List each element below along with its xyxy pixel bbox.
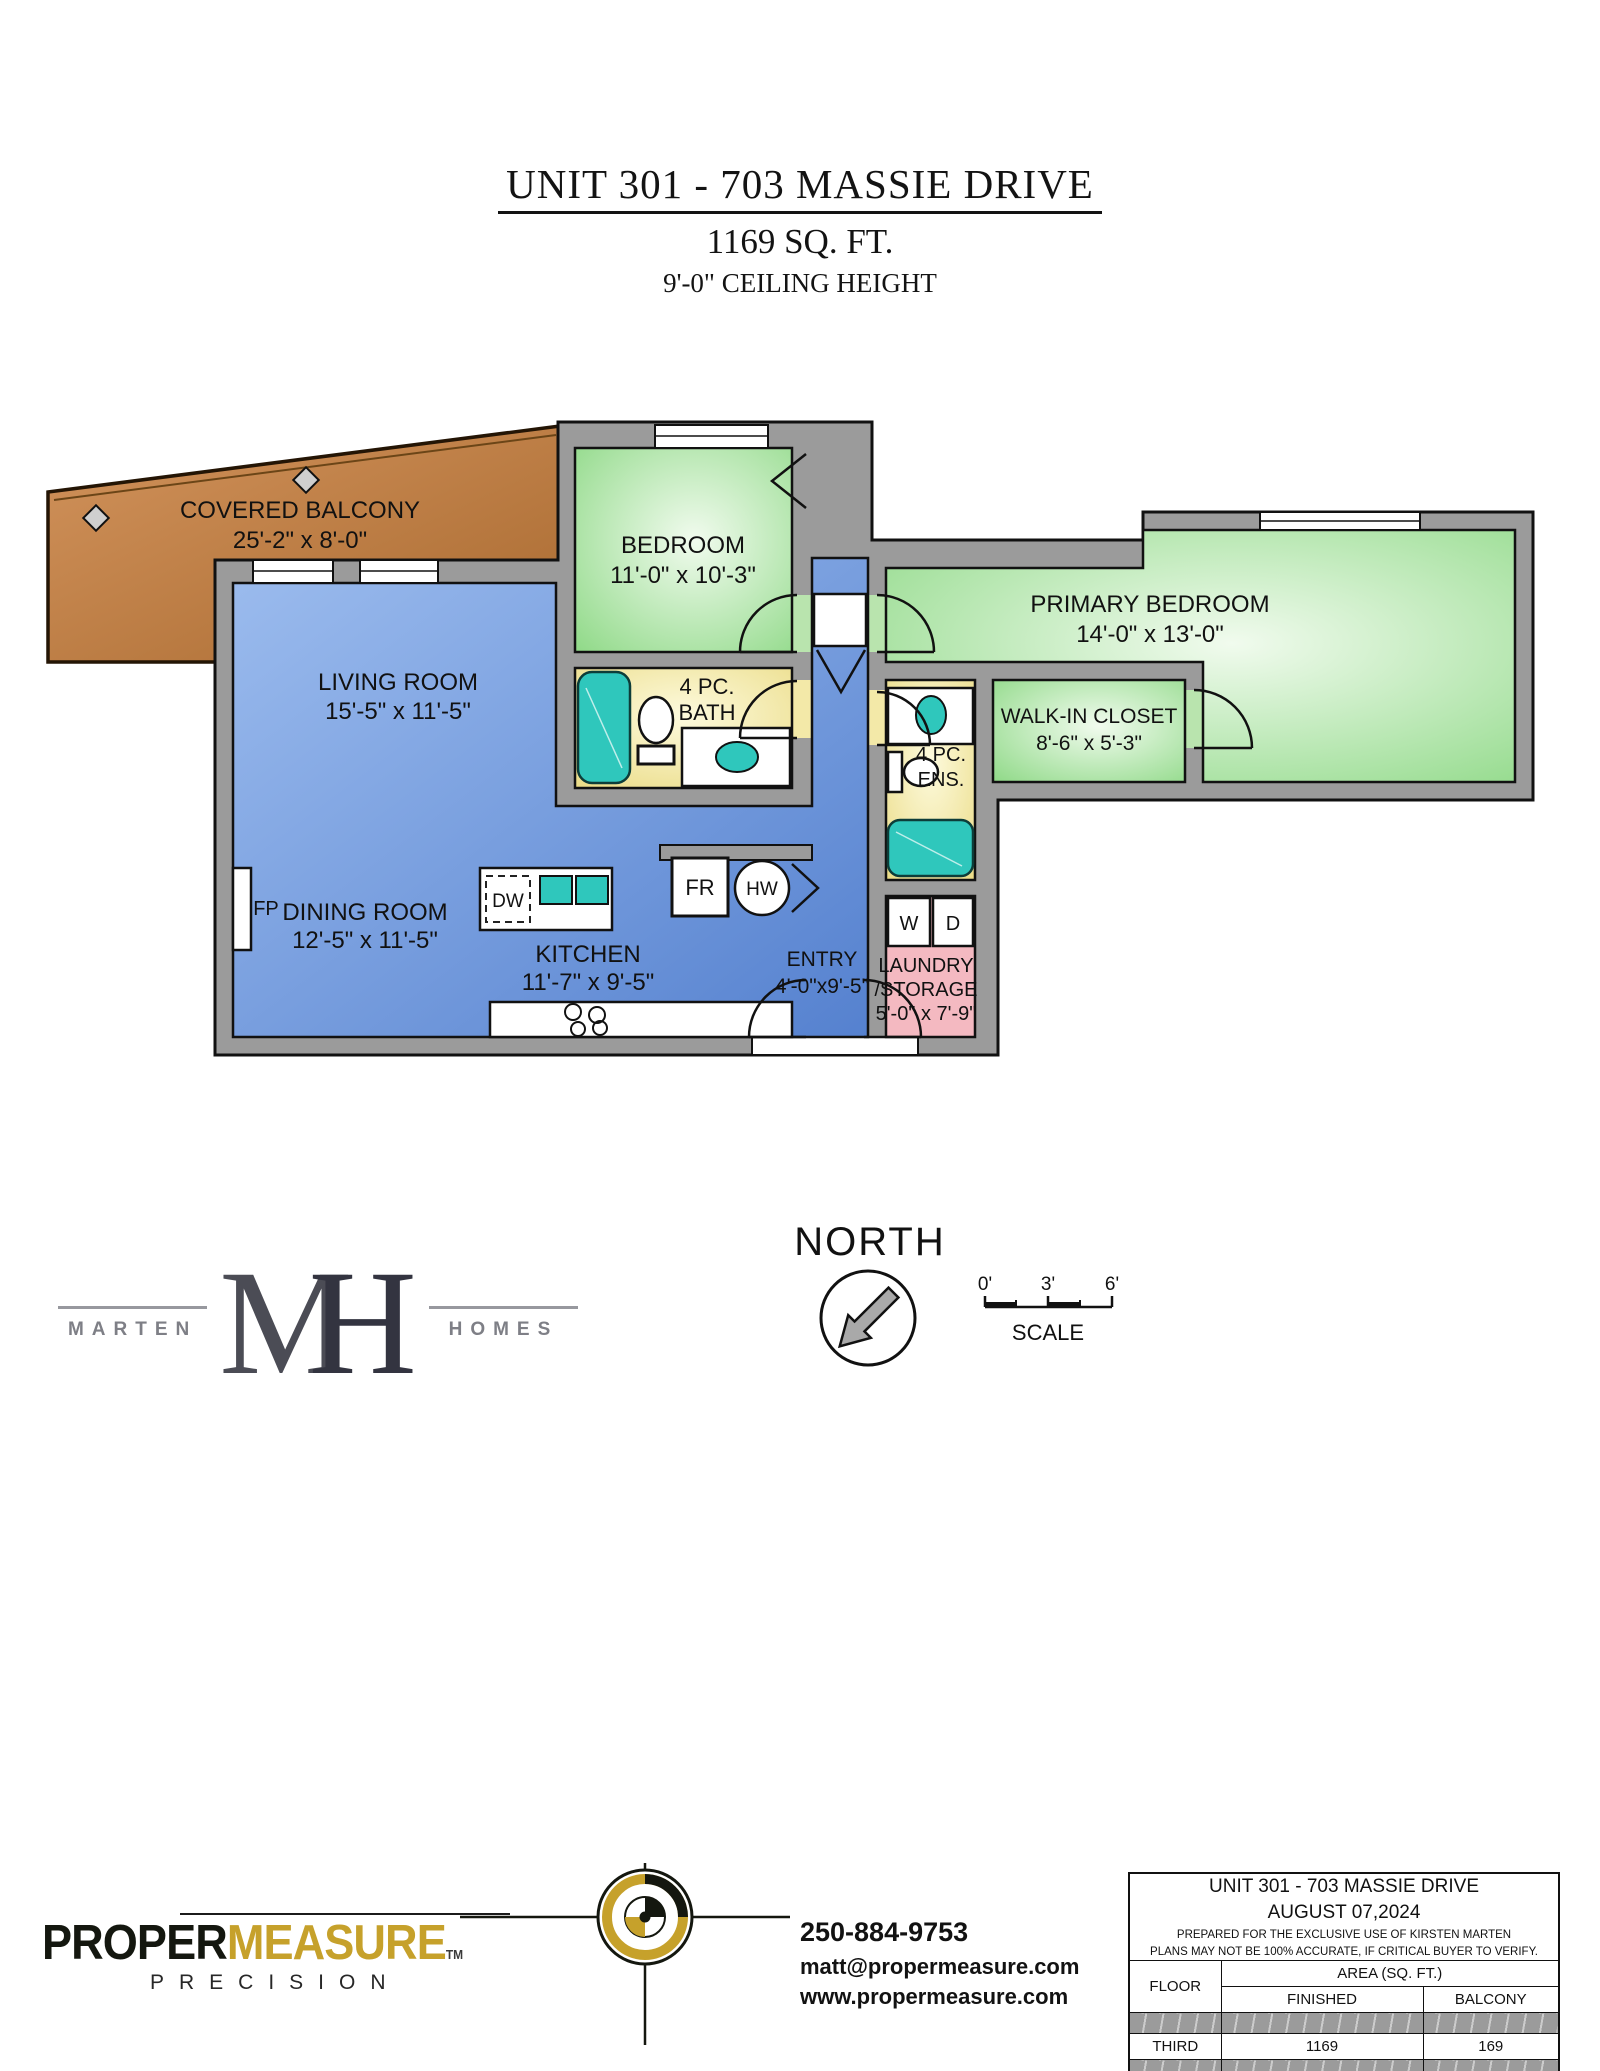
col-header-floor: FLOOR: [1129, 1961, 1221, 2013]
propermeasure-wordmark: PROPERMEASURETM: [42, 1915, 463, 1971]
cell-floor: THIRD: [1129, 2034, 1221, 2060]
bullseye-crosshair-icon: [440, 1855, 800, 2060]
scale-6: 6': [1105, 1274, 1119, 1295]
email: matt@propermeasure.com: [800, 1954, 1079, 1980]
propermeasure-logo-block: PROPERMEASURETM PRECISION 250-884-9753 m…: [40, 1855, 1160, 2065]
col-header-finished: FINISHED: [1221, 1987, 1423, 2013]
balcony-dims: 25'-2" x 8'-0": [233, 527, 367, 554]
ensuite-tub: [888, 820, 973, 876]
phone-number: 250-884-9753: [800, 1917, 1079, 1948]
bedroom-label: BEDROOM: [621, 532, 745, 559]
laundry-label-1: LAUNDRY: [878, 955, 973, 977]
laundry-label-2: /STORAGE: [875, 979, 978, 1001]
living-label: LIVING ROOM: [318, 669, 478, 696]
toilet: [638, 697, 674, 764]
title-block-date: AUGUST 07,2024: [1129, 1900, 1559, 1926]
fireplace: [233, 868, 251, 950]
mh-monogram-icon: MH: [219, 1252, 417, 1395]
cell-balcony: 169: [1423, 2034, 1559, 2060]
kitchen-label: KITCHEN: [535, 941, 640, 968]
marten-word: MARTEN: [58, 1319, 207, 1341]
kitchen-counter-stove: [490, 1002, 792, 1037]
website: www.propermeasure.com: [800, 1984, 1079, 2010]
title-block-note-2: PLANS MAY NOT BE 100% ACCURATE, IF CRITI…: [1129, 1943, 1559, 1961]
title-block-table: UNIT 301 - 703 MASSIE DRIVE AUGUST 07,20…: [1128, 1872, 1560, 2071]
dining-label: DINING ROOM: [282, 899, 447, 926]
contact-info: 250-884-9753 matt@propermeasure.com www.…: [800, 1917, 1079, 2014]
bathtub: [578, 672, 630, 783]
scale-0: 0': [978, 1274, 992, 1295]
dining-dims: 12'-5" x 11'-5": [292, 927, 438, 954]
cell-finished: 1169: [1221, 2034, 1423, 2060]
bath-label-1: 4 PC.: [679, 674, 734, 699]
ensuite-label-1: 4 PC.: [916, 744, 966, 766]
entry-dims: 4'-0"x9'-5": [775, 975, 869, 998]
logo-rule-right: [429, 1306, 578, 1309]
scale-bar: 0' 3' 6' SCALE: [978, 1274, 1119, 1345]
ensuite-label-2: ENS.: [918, 769, 965, 791]
precision-tagline: PRECISION: [150, 1971, 401, 1995]
scale-3: 3': [1041, 1274, 1055, 1295]
living-dims: 15'-5" x 11'-5": [325, 698, 471, 725]
dishwasher-label: DW: [492, 891, 524, 912]
hatch-row: [1129, 2013, 1559, 2034]
primary-label: PRIMARY BEDROOM: [1030, 591, 1269, 618]
col-header-area: AREA (SQ. FT.): [1221, 1961, 1559, 1987]
walkin-label: WALK-IN CLOSET: [1001, 705, 1178, 728]
walkin-dims: 8'-6" x 5'-3": [1036, 732, 1142, 755]
logo-rule-left: [58, 1306, 207, 1309]
dryer-label: D: [946, 913, 960, 935]
balcony-label: COVERED BALCONY: [180, 497, 420, 524]
scale-label: SCALE: [1012, 1320, 1084, 1345]
kitchen-dims: 11'-7" x 9'-5": [522, 969, 654, 996]
primary-dims: 14'-0" x 13'-0": [1076, 621, 1224, 648]
room-walkin-closet: [993, 680, 1185, 782]
bedroom-dims: 11'-0" x 10'-3": [610, 562, 756, 589]
north-label: NORTH: [794, 1220, 945, 1264]
title-block-note-1: PREPARED FOR THE EXCLUSIVE USE OF KIRSTE…: [1129, 1926, 1559, 1943]
marten-homes-logo: MARTEN MH HOMES: [58, 1252, 578, 1395]
floor-plan-page: UNIT 301 - 703 MASSIE DRIVE 1169 SQ. FT.…: [0, 0, 1600, 2071]
title-block-address: UNIT 301 - 703 MASSIE DRIVE: [1129, 1873, 1559, 1900]
hot-water-label: HW: [746, 879, 778, 900]
homes-word: HOMES: [429, 1319, 578, 1341]
hatch-row: [1129, 2060, 1559, 2071]
washer-label: W: [900, 913, 919, 935]
col-header-balcony: BALCONY: [1423, 1987, 1559, 2013]
bath-vanity: [682, 728, 790, 786]
fridge-label: FR: [685, 875, 714, 900]
bath-label-2: BATH: [678, 700, 735, 725]
entry-label: ENTRY: [787, 948, 858, 971]
fireplace-label: FP: [253, 898, 279, 920]
linen-closet: [814, 594, 866, 646]
floor-plan: COVERED BALCONY 25'-2" x 8'-0" LIVING RO…: [0, 0, 1600, 2071]
laundry-dims: 5'-0" x 7'-9": [876, 1003, 977, 1025]
north-compass: NORTH: [794, 1220, 945, 1365]
table-row: THIRD 1169 169: [1129, 2034, 1559, 2060]
